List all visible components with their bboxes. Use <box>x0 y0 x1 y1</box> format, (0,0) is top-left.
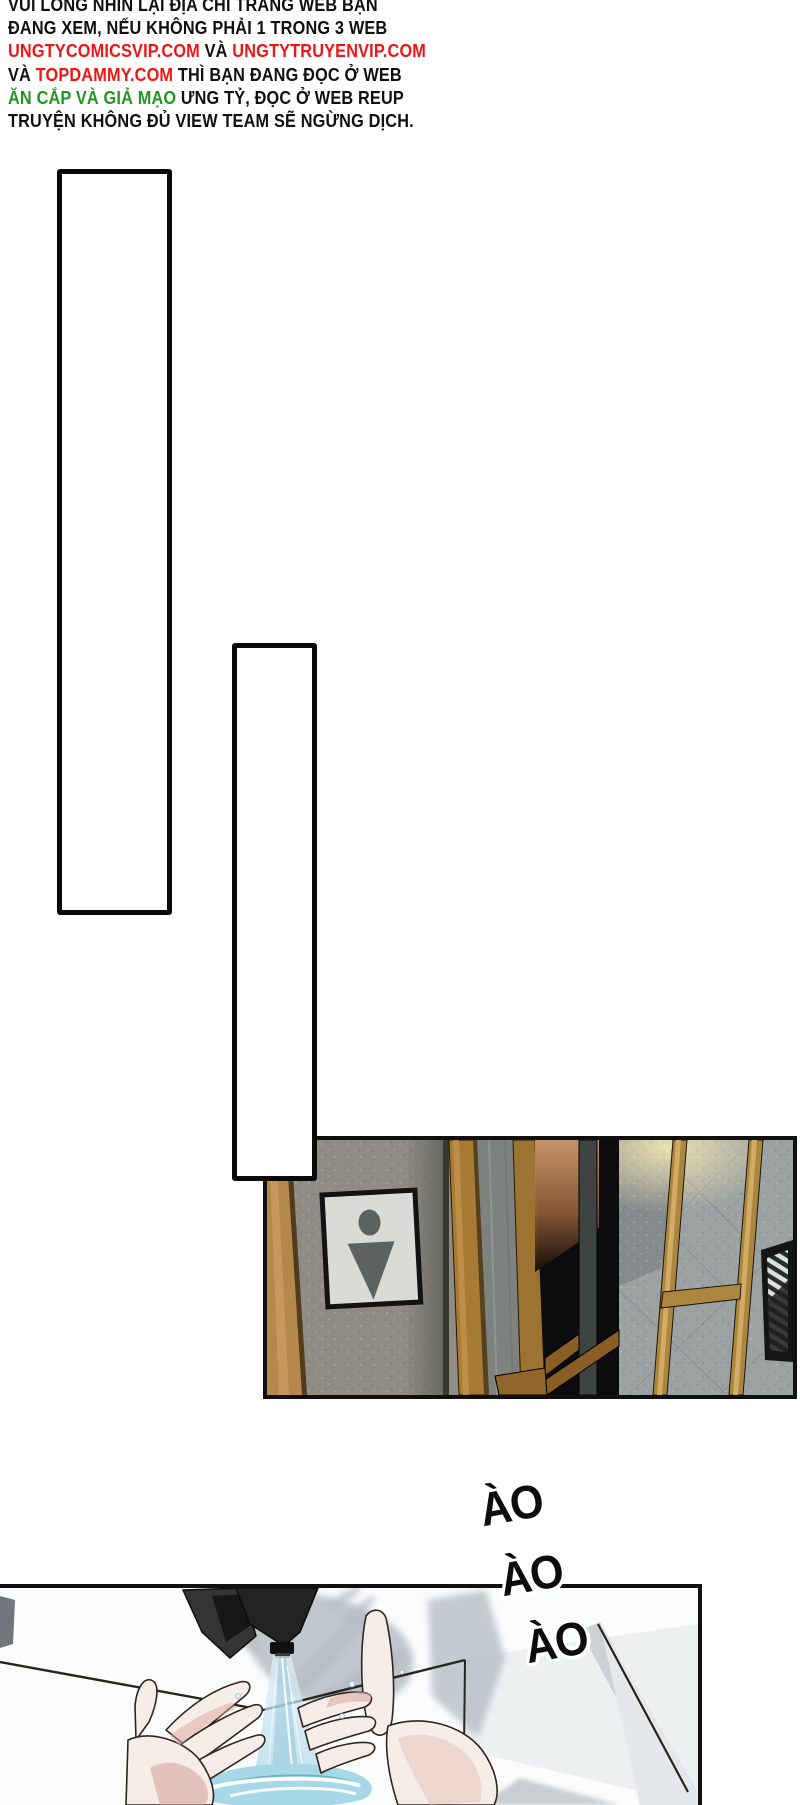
warning-segment-site-link: TOPDAMMY.COM <box>36 64 173 85</box>
warning-segment: THÌ BẠN ĐANG ĐỌC Ở WEB <box>173 64 402 85</box>
framed-photo <box>761 1240 793 1362</box>
restroom-panel <box>263 1136 797 1399</box>
warning-segment: VÀ <box>200 40 232 61</box>
mirror-edge <box>0 1596 15 1648</box>
warning-line: ĐANG XEM, NẾU KHÔNG PHẢI 1 TRONG 3 WEB <box>8 16 426 39</box>
speech-bubble-1 <box>57 169 172 915</box>
warning-segment: ƯNG TỶ, ĐỌC Ở WEB REUP <box>176 87 404 108</box>
speech-bubble-2 <box>232 643 317 1181</box>
warning-line: ĂN CẮP VÀ GIẢ MẠO ƯNG TỶ, ĐỌC Ở WEB REUP <box>8 86 426 109</box>
warning-segment-site-link: UNGTYCOMICSVIP.COM <box>8 40 200 61</box>
restroom-sign <box>322 1190 421 1307</box>
warning-segment: ĐANG XEM, NẾU KHÔNG PHẢI 1 TRONG 3 WEB <box>8 17 387 38</box>
warning-segment-highlight: ĂN CẮP VÀ GIẢ MẠO <box>8 87 176 108</box>
warning-line: VUI LÒNG NHÌN LẠI ĐỊA CHỈ TRANG WEB BẠN <box>8 0 426 16</box>
warning-line: UNGTYCOMICSVIP.COM VÀ UNGTYTRUYENVIP.COM <box>8 39 426 62</box>
warning-line: TRUYỆN KHÔNG ĐỦ VIEW TEAM SẼ NGỪNG DỊCH. <box>8 109 426 132</box>
doorway <box>443 1140 619 1395</box>
page-canvas: VUI LÒNG NHÌN LẠI ĐỊA CHỈ TRANG WEB BẠN … <box>0 0 800 1805</box>
warning-segment: VÀ <box>8 64 36 85</box>
warning-segment-site-link: UNGTYTRUYENVIP.COM <box>232 40 426 61</box>
warning-text: VUI LÒNG NHÌN LẠI ĐỊA CHỈ TRANG WEB BẠN … <box>8 0 426 132</box>
warning-segment: VUI LÒNG NHÌN LẠI ĐỊA CHỈ TRANG WEB BẠN <box>8 0 378 15</box>
sfx-ao-3: ÀO <box>521 1613 591 1670</box>
sfx-ao-1: ÀO <box>476 1476 546 1533</box>
warning-line: VÀ TOPDAMMY.COM THÌ BẠN ĐANG ĐỌC Ở WEB <box>8 63 426 86</box>
sfx-ao-2: ÀO <box>496 1546 566 1603</box>
sink-panel <box>0 1584 702 1805</box>
restroom-artwork <box>267 1140 793 1395</box>
sink-artwork <box>0 1588 698 1805</box>
warning-segment: TRUYỆN KHÔNG ĐỦ VIEW TEAM SẼ NGỪNG DỊCH. <box>8 110 414 131</box>
